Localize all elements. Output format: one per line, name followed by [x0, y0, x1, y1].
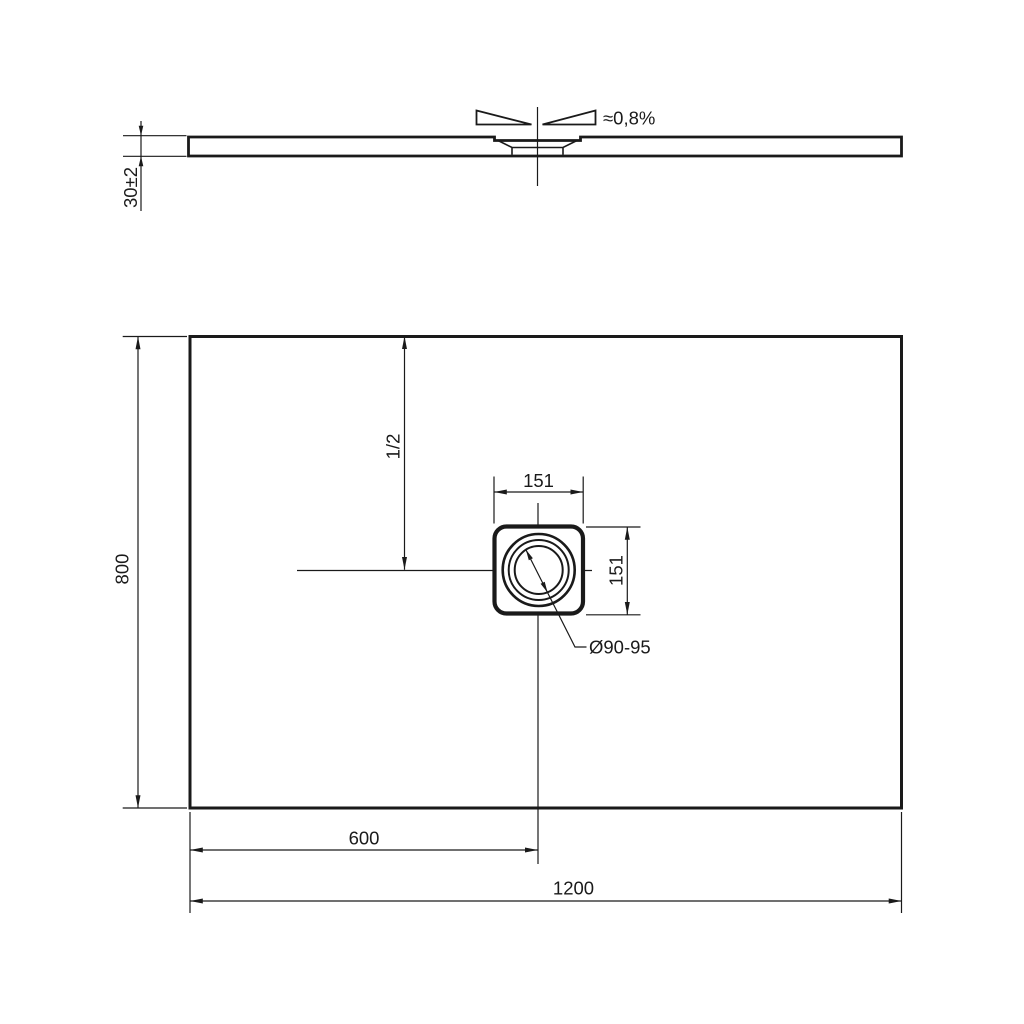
technical-drawing-page: ≈0,8% 30±2 — [0, 0, 1024, 1024]
length-label: 1200 — [553, 878, 594, 899]
drain-diameter-label: Ø90-95 — [589, 637, 651, 658]
thickness-arrow-top — [139, 126, 144, 136]
slope-triangle-left — [477, 111, 532, 125]
slope-triangle-right — [543, 111, 596, 125]
depth-label: 800 — [112, 554, 133, 585]
offset-label: 600 — [349, 828, 380, 849]
length-dimension: 1200 — [190, 812, 902, 913]
drain-depth-label: 151 — [606, 555, 627, 586]
thickness-extension-lines — [123, 136, 187, 157]
depth-dimension: 800 — [112, 337, 188, 809]
side-view: ≈0,8% 30±2 — [120, 107, 902, 211]
thickness-label: 30±2 — [120, 167, 141, 208]
shower-tray-drawing: ≈0,8% 30±2 — [0, 0, 1024, 1024]
thickness-dimension: 30±2 — [120, 121, 187, 211]
side-view-tray-outline — [189, 137, 902, 156]
drain-width-label: 151 — [523, 470, 554, 491]
half-depth-label: 1/2 — [383, 434, 404, 460]
slope-label: ≈0,8% — [603, 108, 655, 129]
thickness-arrow-bottom — [139, 156, 144, 166]
drain-offset-dimension: 600 — [190, 812, 538, 913]
plan-view: Ø90-95 151 151 1/2 — [112, 336, 902, 913]
